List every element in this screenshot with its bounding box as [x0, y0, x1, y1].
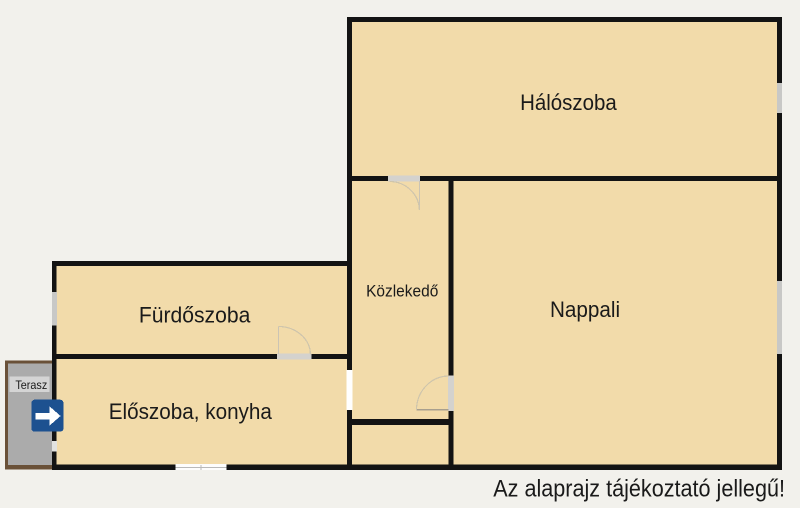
- svg-text:Fürdőszoba: Fürdőszoba: [139, 302, 250, 328]
- svg-text:Hálószoba: Hálószoba: [520, 90, 617, 115]
- svg-text:Terasz: Terasz: [15, 380, 47, 392]
- svg-text:Közlekedő: Közlekedő: [366, 282, 438, 301]
- svg-text:Nappali: Nappali: [550, 298, 620, 323]
- svg-text:Az alaprajz tájékoztató jelleg: Az alaprajz tájékoztató jellegű!: [493, 475, 785, 502]
- svg-text:Előszoba, konyha: Előszoba, konyha: [109, 399, 272, 424]
